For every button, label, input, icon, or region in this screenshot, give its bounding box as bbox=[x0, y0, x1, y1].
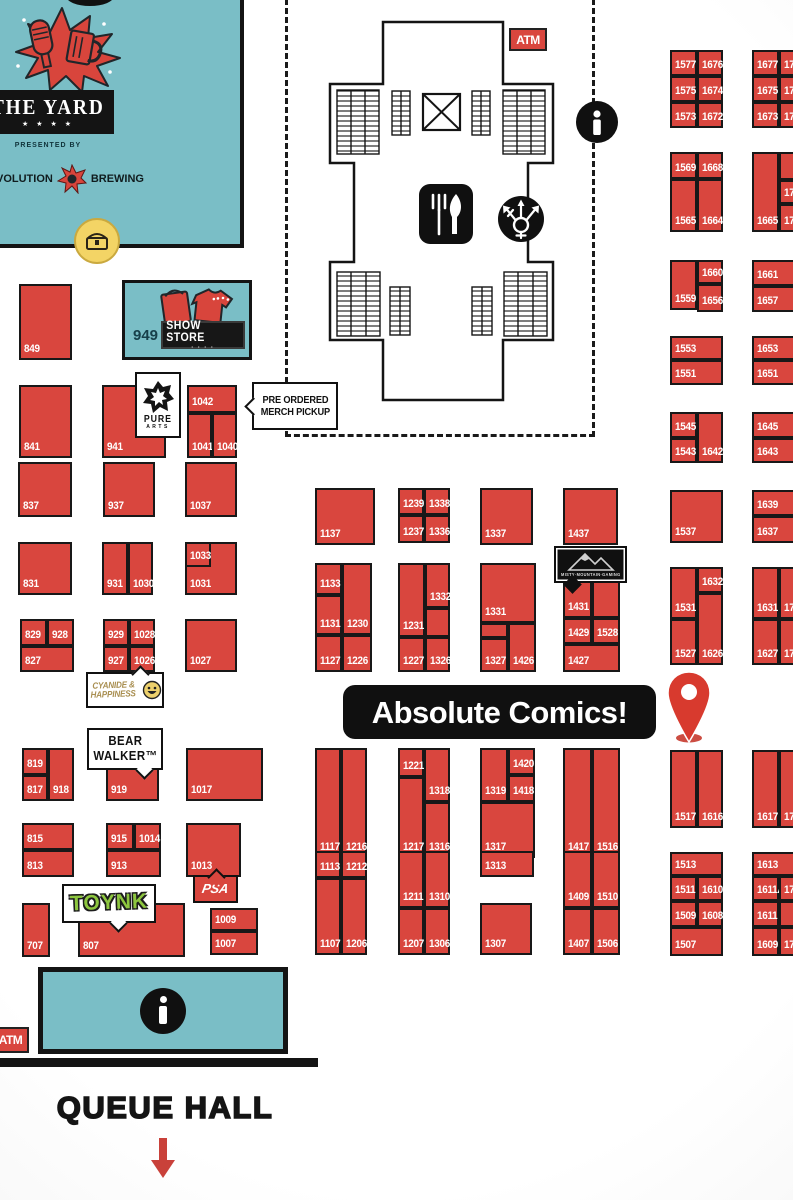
treasure-chest-icon bbox=[74, 218, 120, 264]
booth-1113[interactable]: 1113 bbox=[315, 851, 341, 878]
booth-1626[interactable]: 1626 bbox=[697, 593, 723, 665]
pure-arts-label: PURE ARTS bbox=[135, 372, 181, 438]
pre-order-line2: MERCH PICKUP bbox=[260, 406, 329, 418]
booth-1237[interactable]: 1237 bbox=[398, 515, 424, 543]
yard-stars: ★ ★ ★ ★ bbox=[22, 120, 74, 128]
booth-1028[interactable]: 1028 bbox=[129, 619, 155, 646]
booth-1627[interactable]: 1627 bbox=[752, 619, 779, 665]
booth-1569[interactable]: 1569 bbox=[670, 152, 697, 179]
brewing-text-right: BREWING bbox=[91, 174, 144, 185]
bear-walker-label: BEAR WALKER™ bbox=[87, 728, 163, 770]
booth-1409[interactable]: 1409 bbox=[563, 851, 592, 908]
booth-1107[interactable]: 1107 bbox=[315, 878, 341, 955]
booth-1316[interactable]: 1316 bbox=[424, 802, 450, 858]
booth-1611A[interactable]: 1611A bbox=[752, 876, 779, 901]
booth-817[interactable]: 817 bbox=[22, 775, 48, 801]
booth-170[interactable]: 170 bbox=[779, 927, 793, 956]
pure-arts-logo bbox=[141, 380, 175, 414]
booth-1664[interactable]: 1664 bbox=[697, 179, 723, 232]
booth-931[interactable]: 931 bbox=[102, 542, 128, 595]
queue-hall-title: QUEUE HALL bbox=[0, 1092, 330, 1123]
booth-1610[interactable]: 1610 bbox=[697, 876, 723, 901]
booth-1221[interactable]: 1221 bbox=[398, 748, 424, 777]
booth-1511[interactable]: 1511 bbox=[670, 876, 697, 901]
booth-1437[interactable]: 1437 bbox=[563, 488, 618, 545]
booth-1513[interactable]: 1513 bbox=[670, 852, 723, 876]
booth-1041[interactable]: 1041 bbox=[187, 413, 212, 458]
yard-title: THE YARD bbox=[0, 97, 105, 118]
facility-dashed-region bbox=[285, 0, 595, 437]
booth-1332[interactable]: 1332 bbox=[425, 563, 450, 608]
pre-order-line1: PRE ORDERED bbox=[262, 394, 328, 406]
booth-1553[interactable]: 1553 bbox=[670, 336, 723, 360]
booth-1206[interactable]: 1206 bbox=[341, 878, 367, 955]
booth-1027[interactable]: 1027 bbox=[185, 619, 237, 672]
booth-849[interactable]: 849 bbox=[19, 284, 72, 360]
convention-floor-map: 8498419411042104110408379371037831931103… bbox=[0, 0, 793, 1200]
booth-841[interactable]: 841 bbox=[19, 385, 72, 458]
revolution-brewing-star-icon bbox=[57, 164, 87, 194]
booth-1327[interactable]: 1327 bbox=[480, 638, 508, 672]
booth-1643[interactable]: 1643 bbox=[752, 438, 793, 463]
booth-827[interactable]: 827 bbox=[20, 646, 74, 672]
pre-order-merch-label: PRE ORDERED MERCH PICKUP bbox=[252, 382, 338, 430]
booth-1040[interactable]: 1040 bbox=[212, 413, 237, 458]
booth-937[interactable]: 937 bbox=[103, 462, 155, 517]
toynk-text: TOYNK bbox=[70, 890, 149, 917]
booth-1417[interactable]: 1417 bbox=[563, 748, 592, 858]
booth-829[interactable]: 829 bbox=[20, 619, 47, 646]
booth-1014[interactable]: 1014 bbox=[134, 823, 161, 850]
booth-1217[interactable]: 1217 bbox=[398, 777, 424, 858]
show-store-area: 949 SHOW STORE • • • • bbox=[122, 280, 252, 360]
show-store-sign-text: SHOW STORE bbox=[166, 321, 240, 344]
booth-1531[interactable]: 1531 bbox=[670, 567, 697, 619]
atm-badge-top: ATM bbox=[509, 28, 547, 51]
booth-1642[interactable]: 1642 bbox=[697, 412, 723, 463]
cyanide-line2: HAPPINESS bbox=[91, 689, 136, 700]
booth-1420[interactable]: 1420 bbox=[508, 748, 535, 775]
booth-17[interactable]: 17 bbox=[779, 50, 793, 76]
booth-1657[interactable]: 1657 bbox=[752, 286, 793, 312]
booth-1306[interactable]: 1306 bbox=[424, 908, 450, 955]
booth-1326[interactable]: 1326 bbox=[425, 637, 450, 672]
booth-1632[interactable]: 1632 bbox=[697, 567, 723, 593]
booth-1676[interactable]: 1676 bbox=[697, 50, 723, 76]
booth-1013[interactable]: 1013 bbox=[186, 823, 241, 877]
booth-1673[interactable]: 1673 bbox=[752, 102, 779, 128]
booth-1017[interactable]: 1017 bbox=[186, 748, 263, 801]
booth-929[interactable]: 929 bbox=[103, 619, 129, 646]
booth-unlabeled[interactable] bbox=[480, 623, 508, 638]
pure-arts-subtext: ARTS bbox=[146, 425, 170, 430]
booth-1226[interactable]: 1226 bbox=[342, 635, 372, 672]
booth-1313[interactable]: 1313 bbox=[480, 851, 534, 877]
booth-1677[interactable]: 1677 bbox=[752, 50, 779, 76]
booth-1318[interactable]: 1318 bbox=[424, 748, 450, 802]
booth-1651[interactable]: 1651 bbox=[752, 360, 793, 385]
booth-1216[interactable]: 1216 bbox=[341, 748, 367, 858]
booth-831[interactable]: 831 bbox=[18, 542, 72, 595]
info-icon-bottom bbox=[140, 988, 186, 1034]
booth-1030[interactable]: 1030 bbox=[128, 542, 153, 595]
booth-1661[interactable]: 1661 bbox=[752, 260, 793, 286]
booth-1616[interactable]: 1616 bbox=[697, 750, 723, 828]
info-desk-area bbox=[38, 967, 288, 1054]
booth-17[interactable]: 17 bbox=[779, 567, 793, 619]
brewing-text-left: VOLUTION bbox=[0, 174, 53, 185]
misty-mountain-logo bbox=[561, 551, 621, 571]
booth-1418[interactable]: 1418 bbox=[508, 775, 535, 802]
yard-mic-and-mug-graphic bbox=[0, 6, 154, 92]
booth-1338[interactable]: 1338 bbox=[424, 488, 450, 515]
booth-1510[interactable]: 1510 bbox=[592, 851, 620, 908]
booth-1639[interactable]: 1639 bbox=[752, 490, 793, 516]
booth-707[interactable]: 707 bbox=[22, 903, 50, 957]
booth-17[interactable]: 17 bbox=[779, 76, 793, 102]
booth-1337[interactable]: 1337 bbox=[480, 488, 533, 545]
booth-17[interactable]: 17 bbox=[779, 876, 793, 901]
absolute-comics-banner: Absolute Comics! bbox=[343, 685, 656, 739]
show-store-sign: SHOW STORE • • • • bbox=[161, 321, 245, 349]
booth-1675[interactable]: 1675 bbox=[752, 76, 779, 102]
booth-1528[interactable]: 1528 bbox=[592, 618, 620, 644]
booth-1207[interactable]: 1207 bbox=[398, 908, 424, 955]
booth-837[interactable]: 837 bbox=[18, 462, 72, 517]
booth-unlabeled[interactable] bbox=[779, 901, 793, 927]
booth-1211[interactable]: 1211 bbox=[398, 851, 424, 908]
booth-1660[interactable]: 1660 bbox=[697, 260, 723, 284]
misty-mountain-gaming-label: MISTY·MOUNTAIN·GAMING bbox=[554, 546, 627, 583]
booth-1545[interactable]: 1545 bbox=[670, 412, 697, 438]
booth-1516[interactable]: 1516 bbox=[592, 748, 620, 858]
cyanide-happiness-label: CYANIDE & HAPPINESS bbox=[86, 672, 164, 708]
booth-1506[interactable]: 1506 bbox=[592, 908, 620, 955]
booth-1429[interactable]: 1429 bbox=[563, 618, 592, 644]
booth-813[interactable]: 813 bbox=[22, 850, 74, 877]
booth-1033[interactable]: 1033 bbox=[185, 542, 211, 567]
booth-1127[interactable]: 1127 bbox=[315, 635, 342, 672]
booth-1613[interactable]: 1613 bbox=[752, 852, 793, 876]
booth-1227[interactable]: 1227 bbox=[398, 637, 425, 672]
booth-1009[interactable]: 1009 bbox=[210, 908, 258, 931]
booth-1668[interactable]: 1668 bbox=[697, 152, 723, 179]
the-yard-area: THE YARD ★ ★ ★ ★ PRESENTED BY VOLUTION B… bbox=[0, 0, 244, 248]
booth-1407[interactable]: 1407 bbox=[563, 908, 592, 955]
booth-1319[interactable]: 1319 bbox=[480, 748, 508, 802]
booth-918[interactable]: 918 bbox=[48, 748, 74, 801]
show-store-booth-number: 949 bbox=[133, 328, 158, 343]
show-store-sign-dots: • • • • bbox=[192, 344, 215, 349]
booth-1611[interactable]: 1611 bbox=[752, 901, 779, 927]
atm-badge-bottom: ATM bbox=[0, 1027, 29, 1053]
bear-walker-line1: BEAR bbox=[108, 734, 142, 749]
booth-928[interactable]: 928 bbox=[47, 619, 74, 646]
booth-1007[interactable]: 1007 bbox=[210, 931, 258, 955]
yard-title-bar: THE YARD ★ ★ ★ ★ bbox=[0, 90, 114, 134]
pure-arts-text: PURE bbox=[144, 414, 172, 426]
booth-1507[interactable]: 1507 bbox=[670, 927, 723, 956]
booth-1037[interactable]: 1037 bbox=[185, 462, 237, 517]
yard-brewing-row: VOLUTION BREWING bbox=[0, 164, 160, 194]
booth-17[interactable]: 17 bbox=[779, 619, 793, 665]
booth-815[interactable]: 815 bbox=[22, 823, 74, 850]
booth-819[interactable]: 819 bbox=[22, 748, 48, 775]
booth-1427[interactable]: 1427 bbox=[563, 644, 620, 672]
bear-walker-line2: WALKER™ bbox=[93, 749, 157, 764]
booth-1137[interactable]: 1137 bbox=[315, 488, 375, 545]
booth-1239[interactable]: 1239 bbox=[398, 488, 424, 515]
booth-1672[interactable]: 1672 bbox=[697, 102, 723, 128]
booth-1543[interactable]: 1543 bbox=[670, 438, 697, 463]
booth-913[interactable]: 913 bbox=[106, 850, 161, 877]
booth-1307[interactable]: 1307 bbox=[480, 903, 532, 955]
booth-1617[interactable]: 1617 bbox=[752, 750, 779, 828]
booth-1117[interactable]: 1117 bbox=[315, 748, 341, 858]
booth-1310[interactable]: 1310 bbox=[424, 851, 450, 908]
yard-presented-by: PRESENTED BY bbox=[0, 142, 114, 149]
booth-1637[interactable]: 1637 bbox=[752, 516, 793, 543]
booth-17[interactable]: 17 bbox=[779, 102, 793, 128]
booth-1645[interactable]: 1645 bbox=[752, 412, 793, 438]
booth-176[interactable]: 176 bbox=[779, 180, 793, 204]
booth-1665[interactable]: 1665 bbox=[752, 152, 779, 232]
booth-1509[interactable]: 1509 bbox=[670, 901, 697, 927]
booth-1537[interactable]: 1537 bbox=[670, 490, 723, 543]
booth-unlabeled[interactable] bbox=[779, 152, 793, 180]
booth-915[interactable]: 915 bbox=[106, 823, 134, 850]
booth-1131[interactable]: 1131 bbox=[315, 595, 342, 635]
hall-wall-line bbox=[0, 1058, 318, 1067]
booth-927[interactable]: 927 bbox=[103, 646, 129, 672]
booth-1133[interactable]: 1133 bbox=[315, 563, 342, 595]
booth-1331[interactable]: 1331 bbox=[480, 563, 536, 623]
booth-1336[interactable]: 1336 bbox=[424, 515, 450, 543]
booth-176[interactable]: 176 bbox=[779, 204, 793, 232]
toynk-label: TOYNK bbox=[62, 884, 156, 923]
booth-1212[interactable]: 1212 bbox=[341, 851, 367, 878]
booth-1551[interactable]: 1551 bbox=[670, 360, 723, 385]
booth-1609[interactable]: 1609 bbox=[752, 927, 779, 956]
queue-hall-arrow-icon bbox=[151, 1138, 175, 1180]
booth-1231[interactable]: 1231 bbox=[398, 563, 425, 637]
booth-1559[interactable]: 1559 bbox=[670, 260, 697, 310]
map-pin-icon bbox=[660, 668, 720, 748]
booth-17[interactable]: 17 bbox=[779, 750, 793, 828]
booth-unlabeled[interactable] bbox=[425, 608, 450, 637]
booth-1517[interactable]: 1517 bbox=[670, 750, 697, 828]
booth-1575[interactable]: 1575 bbox=[670, 76, 697, 102]
booth-1653[interactable]: 1653 bbox=[752, 336, 793, 360]
booth-1577[interactable]: 1577 bbox=[670, 50, 697, 76]
booth-1230[interactable]: 1230 bbox=[342, 563, 372, 635]
booth-1565[interactable]: 1565 bbox=[670, 179, 697, 232]
booth-1608[interactable]: 1608 bbox=[697, 901, 723, 927]
booth-1656[interactable]: 1656 bbox=[697, 284, 723, 312]
booth-1426[interactable]: 1426 bbox=[508, 623, 536, 672]
smiley-icon bbox=[142, 680, 162, 700]
booth-1674[interactable]: 1674 bbox=[697, 76, 723, 102]
booth-1317[interactable]: 1317 bbox=[480, 802, 535, 858]
booth-1631[interactable]: 1631 bbox=[752, 567, 779, 619]
booth-1573[interactable]: 1573 bbox=[670, 102, 697, 128]
booth-1042[interactable]: 1042 bbox=[187, 385, 237, 413]
booth-1527[interactable]: 1527 bbox=[670, 619, 697, 665]
